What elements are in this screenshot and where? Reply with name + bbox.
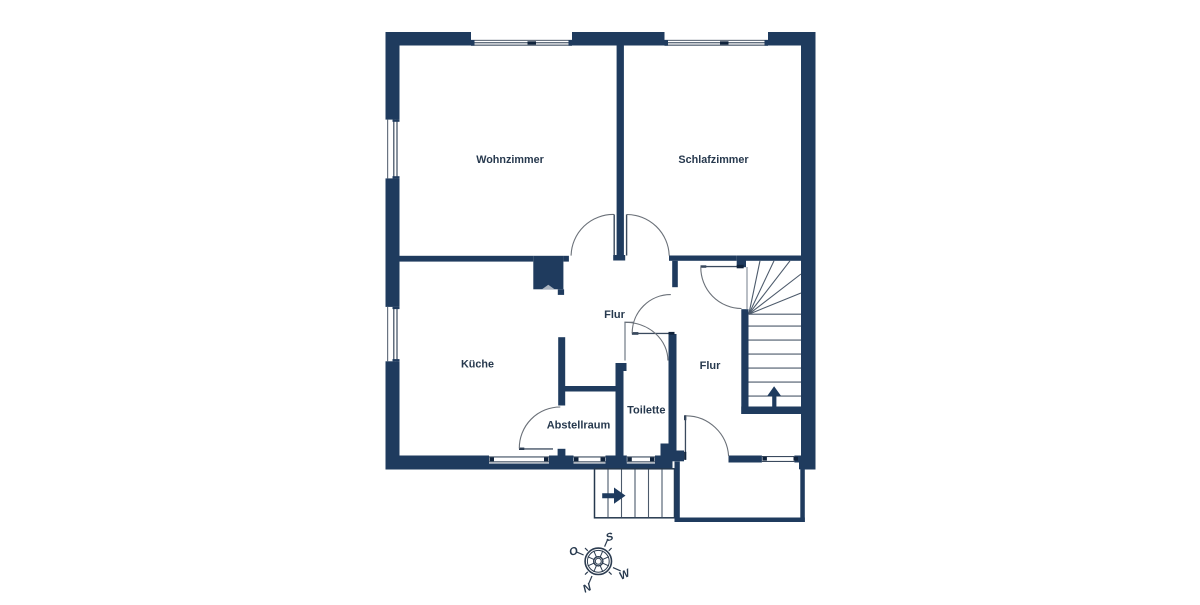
svg-text:Abstellraum: Abstellraum xyxy=(547,420,611,432)
svg-text:Flur: Flur xyxy=(700,360,721,372)
svg-text:Wohnzimmer: Wohnzimmer xyxy=(476,154,544,166)
svg-text:Schlafzimmer: Schlafzimmer xyxy=(678,154,749,166)
svg-text:Küche: Küche xyxy=(461,359,494,371)
svg-text:Toilette: Toilette xyxy=(627,405,665,417)
svg-text:Flur: Flur xyxy=(604,309,625,321)
